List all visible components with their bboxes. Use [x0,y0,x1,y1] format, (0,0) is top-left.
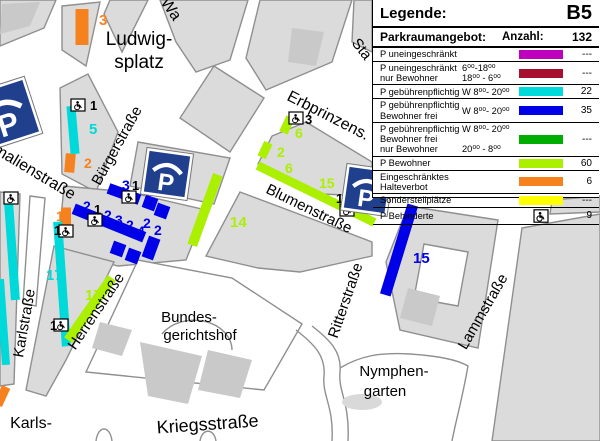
parking-count-label: 2 [126,217,134,233]
legend-column-header: Parkraumangebot: Anzahl: 132 [373,28,599,48]
legend-row-count: --- [568,195,592,206]
legend-row-times: W 8⁰⁰- 20⁰⁰ [462,106,518,116]
legend-row: P gebührenpflichtigW 8⁰⁰- 20⁰⁰22 [373,85,599,99]
legend-row-swatch-cell [518,209,564,223]
legend-col-offer: Parkraumangebot: [380,30,502,44]
legend-row: P uneingeschränkt nur Bewohner6⁰⁰-18⁰⁰ 1… [373,62,599,85]
legend-wheelchair-icon [533,209,549,223]
legend-color-swatch [519,177,563,186]
disabled-count-label: 3 [305,112,312,127]
legend-row-swatch-cell [518,50,564,59]
parking-count-label: 2 [277,144,285,160]
legend-row-times: W 8⁰⁰- 20⁰⁰ [462,87,518,97]
parking-bar-orange [64,153,76,173]
legend-row-swatch-cell [518,87,564,96]
street-label: gerichtshof [163,327,237,344]
legend-row-label: P uneingeschränkt [380,49,462,59]
parking-count-label: 3 [99,12,107,29]
legend-color-swatch [519,87,563,96]
parking-count-label: 15 [413,250,430,267]
parking-garage-icon: P [140,147,193,200]
legend-row-count: --- [568,134,592,145]
legend-row-label: P uneingeschränkt nur Bewohner [380,63,462,83]
disabled-parking-icon [4,192,18,204]
legend-row-swatch-cell [518,159,564,168]
disabled-count-label: 1 [94,202,101,217]
street-label: Bundes- [161,309,217,326]
legend-row-count: 9 [568,210,592,221]
legend-row: P gebührenpflichtig Bewohner frei nur Be… [373,123,599,157]
street-label: garten [364,383,407,400]
legend-row-count: 35 [568,105,592,116]
legend-row-swatch-cell [518,177,564,186]
legend-color-swatch [519,106,563,115]
parking-count-label: 2 [83,198,91,214]
legend-row-times: W 8⁰⁰- 20⁰⁰ 20⁰⁰ - 8⁰⁰ [462,124,518,155]
legend-row-label: P gebührenpflichtig Bewohner frei nur Be… [380,124,462,155]
legend-row-swatch-cell [518,196,564,205]
legend-title: Legende: [380,5,447,22]
legend-rows: P uneingeschränkt---P uneingeschränkt nu… [373,48,599,225]
parking-count-label: 2 [154,222,162,238]
parking-count-label: 5 [89,121,97,138]
legend-color-swatch [519,159,563,168]
legend-row-count: --- [568,49,592,60]
parking-count-label: 6 [295,125,303,141]
parking-count-label: 17 [85,287,102,304]
street-label: splatz [114,52,164,73]
legend-row-count: 60 [568,158,592,169]
legend-header: Legende: B5 [373,0,599,28]
disabled-count-label: 1 [54,223,61,238]
legend-row-swatch-cell [518,135,564,144]
legend-row-label: P gebührenpflichtig [380,87,462,97]
legend-row: P gebührenpflichtig Bewohner freiW 8⁰⁰- … [373,99,599,122]
disabled-count-label: 1 [132,178,139,193]
legend-row: P Behinderte9 [373,208,599,225]
legend-row-swatch-cell [518,106,564,115]
parking-garage-icon: P [0,76,43,152]
disabled-count-label: 1 [50,318,57,333]
legend-total-count: 132 [564,30,592,44]
street-label: Ritterstraße [325,261,367,341]
legend-row-label: Eingeschränktes Halteverbot [380,172,462,192]
street-label: Karls- [10,415,52,432]
parking-map-view: Ludwig-splatzWaStaErbprinzens.Bürgerstra… [0,0,600,441]
parking-count-label: 14 [230,214,247,231]
parking-count-label: 6 [285,160,293,176]
legend-row-count: --- [568,68,592,79]
parking-count-label: 1 [56,208,64,224]
legend-row-label: Sonderstellplätze [380,195,462,205]
parking-bar-orange [76,9,89,45]
parking-count-label: 2 [104,207,112,223]
disabled-parking-icon: 1 [54,223,73,238]
parking-count-label: 2 [84,155,92,171]
street-label: Ludwig- [106,29,173,50]
legend-row-label: P Behinderte [380,211,462,221]
parking-count-label: 17 [46,267,63,284]
legend-row-label: P gebührenpflichtig Bewohner frei [380,100,462,120]
parking-count-label: 3 [115,212,123,228]
disabled-parking-icon: 1 [71,98,97,113]
legend-row-times: 6⁰⁰-18⁰⁰ 18⁰⁰ - 6⁰⁰ [462,63,518,83]
disabled-count-label: 1 [90,98,97,113]
parking-bar-orange [0,385,10,407]
disabled-parking-icon: 1 [50,318,68,333]
legend-row-label: P Bewohner [380,158,462,168]
legend-row: Eingeschränktes Halteverbot6 [373,171,599,194]
legend-row: Sonderstellplätze--- [373,194,599,208]
parking-count-label: 15 [319,175,335,191]
legend-row-count: 22 [568,86,592,97]
legend-col-count: Anzahl: [502,31,564,43]
street-label: Kriegsstraße [156,410,259,437]
legend-panel: Legende: B5 Parkraumangebot: Anzahl: 132… [372,0,599,198]
legend-color-swatch [519,135,563,144]
legend-row: P uneingeschränkt--- [373,48,599,62]
street-label: Nymphen- [359,363,428,380]
legend-color-swatch [519,69,563,78]
map-grid-code: B5 [566,2,592,25]
legend-color-swatch [519,196,563,205]
legend-row-count: 6 [568,176,592,187]
parking-count-label: 2 [143,215,151,231]
legend-row-swatch-cell [518,69,564,78]
legend-row: P Bewohner60 [373,157,599,171]
legend-color-swatch [519,50,563,59]
